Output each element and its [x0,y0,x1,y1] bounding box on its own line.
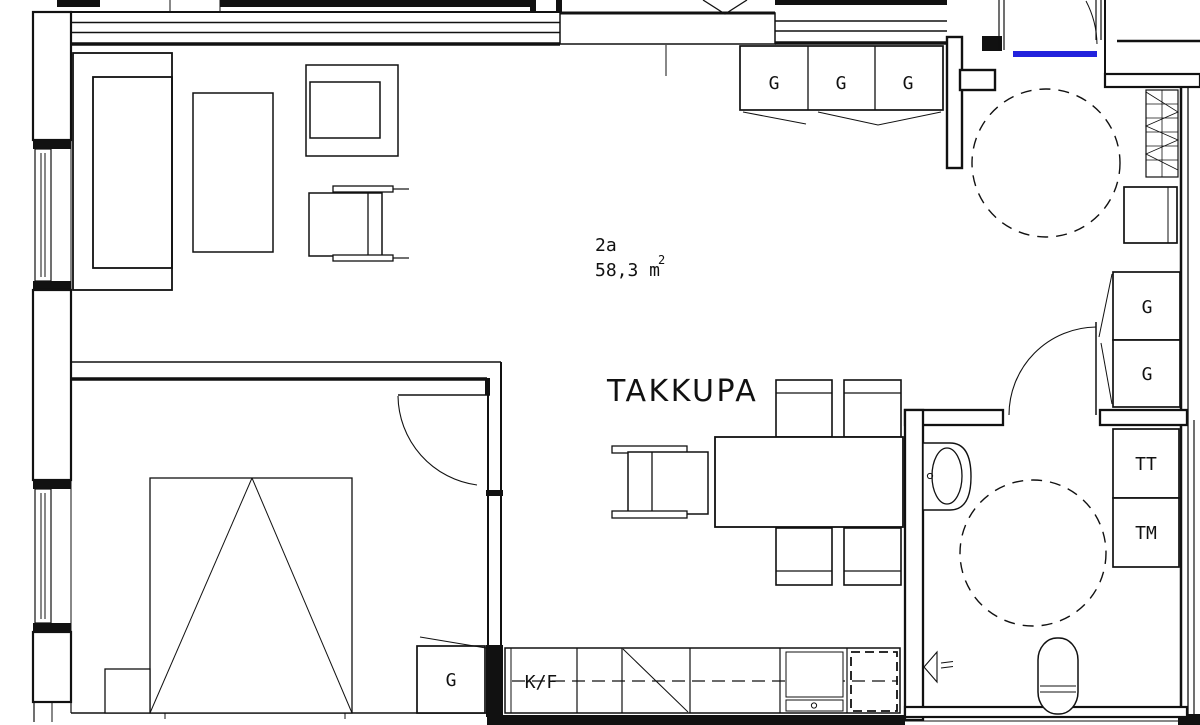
wardrobe-swing-mark [818,112,941,125]
dining-chair [844,380,901,437]
nightstand [105,669,150,713]
coffee-table [193,93,273,252]
window-living [35,140,71,290]
coat-rack [1146,90,1178,177]
top-window-band-right [775,0,947,43]
bedroom-door [398,395,490,485]
right-exterior-wall [1178,87,1200,725]
wardrobe-swing-mark [1099,274,1112,337]
wardrobe-label: G [836,73,847,94]
bathroom-turning-circle [960,480,1106,626]
dining-chair [776,380,832,437]
unit-info: 2a 58,3 m 2 [595,235,665,281]
bathroom-door [1009,322,1096,415]
top-right-walls [1105,0,1200,87]
wheelchair-symbol-living [309,186,409,261]
dining-table [715,437,903,527]
wardrobe-label: G [769,73,780,94]
wardrobe-label: G [446,670,457,691]
area-superscript: 2 [658,253,665,267]
wardrobe-label: G [903,73,914,94]
top-window-band-left [57,0,562,44]
dining-chair [776,528,832,585]
dining-chair [844,528,901,585]
hall-bench [1124,187,1177,243]
sofa [73,53,172,290]
washing-machine-label: TM [1135,523,1157,544]
window-bedroom [35,480,71,632]
wheelchair-symbol-dining [612,446,708,518]
bedroom-door-arc [398,396,477,485]
room-title: TAKKUPA [606,374,758,409]
hall-wardrobes: G G [1099,272,1180,407]
bathroom-door-arc [1009,327,1096,415]
bedroom-kitchen-wall [486,362,503,717]
hall-turning-circle [972,89,1120,237]
fridge-freezer-label: K/F [525,672,558,693]
bedroom-wardrobe: G [417,637,486,713]
stove [786,652,843,711]
wardrobe-label: G [1142,297,1153,318]
entrance-door-arc [1086,1,1097,44]
dryer-cabinet: TT [1113,429,1179,498]
bedroom-partition-wall [71,362,501,395]
sink [923,443,971,510]
hallway-wardrobes-top: G G G [740,46,943,125]
washer-cabinet: TM [1113,498,1179,567]
floorplan-svg: G G G G G [0,0,1200,725]
dryer-label: TT [1135,454,1157,475]
entrance-door [982,0,1101,57]
toilet [1038,638,1078,714]
hall-partition-wall [947,37,995,168]
unit-label: 2a [595,235,617,256]
bed [150,478,352,713]
kitchen-counter: K/F [505,648,900,713]
area-label: 58,3 m [595,260,660,281]
floorplan-page: G G G G G [0,0,1200,725]
drain-triangle-icon [924,652,937,682]
wardrobe-label: G [1142,364,1153,385]
threshold-marker [1013,51,1097,57]
wardrobe-swing-mark [743,112,806,124]
left-exterior-wall [33,12,71,722]
floor-drain [924,652,953,682]
wardrobe-swing-mark [1101,343,1112,404]
armchair [306,65,398,156]
